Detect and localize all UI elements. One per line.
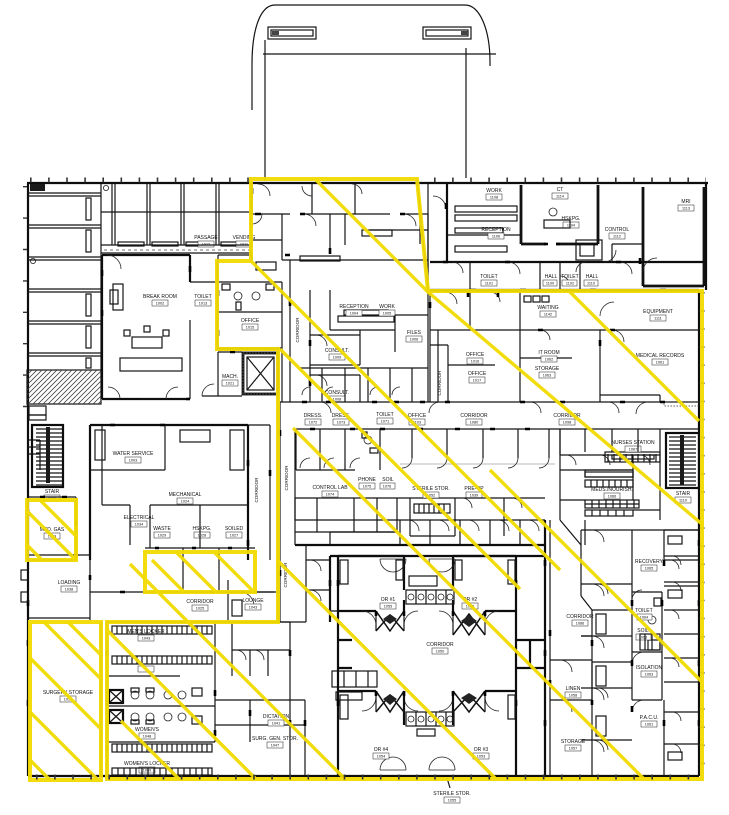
svg-text:1003: 1003	[129, 459, 137, 463]
svg-text:CORRIDOR: CORRIDOR	[295, 317, 300, 343]
svg-text:WASTE: WASTE	[153, 526, 171, 532]
svg-text:1050: 1050	[436, 650, 444, 654]
svg-text:1038: 1038	[65, 588, 73, 592]
svg-text:1013: 1013	[199, 302, 207, 306]
svg-text:1057: 1057	[569, 747, 577, 751]
svg-text:1065: 1065	[645, 567, 653, 571]
svg-text:BREAK ROOM: BREAK ROOM	[143, 294, 177, 300]
svg-text:OFFICE: OFFICE	[468, 371, 487, 377]
svg-text:1004: 1004	[350, 312, 358, 316]
svg-text:1080: 1080	[470, 421, 478, 425]
svg-text:DRESS.: DRESS.	[304, 413, 323, 419]
svg-text:1086: 1086	[576, 622, 584, 626]
svg-text:FILES: FILES	[407, 330, 422, 336]
svg-text:1028: 1028	[198, 534, 206, 538]
svg-text:PHONE: PHONE	[358, 477, 376, 483]
svg-text:1104: 1104	[567, 224, 575, 228]
svg-text:SOILED: SOILED	[225, 526, 244, 532]
svg-text:1054: 1054	[377, 755, 385, 759]
svg-text:1009: 1009	[333, 356, 341, 360]
svg-text:1067: 1067	[629, 448, 637, 452]
svg-text:1063: 1063	[543, 374, 551, 378]
svg-text:1071: 1071	[381, 420, 389, 424]
svg-text:CORRIDOR: CORRIDOR	[284, 465, 289, 491]
svg-text:CORRIDOR: CORRIDOR	[437, 370, 442, 396]
svg-text:1076: 1076	[383, 485, 391, 489]
svg-text:LINEN: LINEN	[566, 686, 581, 692]
svg-text:STERILE STOR.: STERILE STOR.	[433, 791, 470, 797]
svg-text:MEDICAL RECORDS: MEDICAL RECORDS	[636, 353, 685, 359]
svg-text:1075: 1075	[363, 485, 371, 489]
svg-text:1048: 1048	[143, 735, 151, 739]
svg-text:TOILET: TOILET	[480, 274, 497, 280]
svg-text:OR #4: OR #4	[374, 747, 389, 753]
svg-text:WORK: WORK	[486, 188, 502, 194]
svg-text:HALL: HALL	[545, 274, 558, 280]
svg-text:LOADING: LOADING	[58, 580, 81, 586]
svg-text:CONTROL LAB: CONTROL LAB	[312, 485, 348, 491]
svg-text:P.A.C.U.: P.A.C.U.	[640, 715, 659, 721]
svg-text:1063: 1063	[645, 673, 653, 677]
svg-text:NURSES STATION: NURSES STATION	[611, 440, 655, 446]
svg-text:1053: 1053	[477, 755, 485, 759]
svg-text:1016: 1016	[471, 360, 479, 364]
svg-text:WOMEN'S: WOMEN'S	[135, 727, 160, 733]
svg-text:RECOVERY: RECOVERY	[635, 559, 664, 565]
svg-text:1017: 1017	[473, 379, 481, 383]
svg-text:1100: 1100	[546, 282, 554, 286]
svg-text:OR #1: OR #1	[381, 597, 396, 603]
svg-text:1113: 1113	[682, 207, 690, 211]
svg-text:HALL: HALL	[586, 274, 599, 280]
svg-text:CORRIDOR: CORRIDOR	[186, 599, 214, 605]
svg-text:OFFICE: OFFICE	[408, 413, 427, 419]
svg-text:WORK: WORK	[379, 304, 395, 310]
svg-text:1114: 1114	[556, 195, 564, 199]
svg-text:1039: 1039	[470, 494, 478, 498]
svg-text:1072: 1072	[309, 421, 317, 425]
svg-text:IT ROOM: IT ROOM	[538, 350, 559, 356]
svg-text:1049: 1049	[143, 769, 151, 773]
svg-text:TOILET: TOILET	[635, 608, 652, 614]
svg-text:1047: 1047	[271, 744, 279, 748]
svg-text:1106: 1106	[492, 235, 500, 239]
svg-text:1029: 1029	[158, 534, 166, 538]
svg-text:1005: 1005	[383, 312, 391, 316]
svg-text:1061: 1061	[656, 361, 664, 365]
svg-text:1142: 1142	[544, 313, 552, 317]
svg-text:1074: 1074	[326, 493, 334, 497]
svg-text:MECHANICAL: MECHANICAL	[169, 492, 202, 498]
svg-text:1062: 1062	[545, 358, 553, 362]
svg-text:STORAGE: STORAGE	[535, 366, 560, 372]
svg-text:1015: 1015	[246, 326, 254, 330]
svg-text:CORRIDOR: CORRIDOR	[426, 642, 454, 648]
svg-text:1021: 1021	[226, 382, 234, 386]
svg-text:1061: 1061	[645, 723, 653, 727]
svg-text:1043: 1043	[142, 637, 150, 641]
svg-text:SURG. GEN. STOR.: SURG. GEN. STOR.	[252, 736, 298, 742]
svg-text:SOIL: SOIL	[382, 477, 394, 483]
svg-text:1041: 1041	[272, 722, 280, 726]
svg-text:1055: 1055	[448, 799, 456, 803]
svg-text:1002: 1002	[156, 302, 164, 306]
svg-text:OFFICE: OFFICE	[466, 352, 485, 358]
svg-text:MEDS./NOURISH.: MEDS./NOURISH.	[591, 487, 633, 493]
svg-text:LOUNGE: LOUNGE	[242, 598, 264, 604]
svg-text:1066: 1066	[608, 495, 616, 499]
svg-text:1110: 1110	[679, 499, 687, 503]
svg-text:1055: 1055	[384, 605, 392, 609]
svg-text:1027: 1027	[230, 534, 238, 538]
svg-text:ISOLATION: ISOLATION	[636, 665, 663, 671]
svg-text:WAITING: WAITING	[537, 305, 558, 311]
svg-text:1025: 1025	[196, 607, 204, 611]
svg-text:TOILET: TOILET	[376, 412, 393, 418]
svg-text:1111: 1111	[654, 317, 662, 321]
svg-text:1098: 1098	[563, 421, 571, 425]
svg-text:RECEPTION: RECEPTION	[339, 304, 369, 310]
svg-text:1034: 1034	[135, 523, 143, 527]
svg-text:HSKPG.: HSKPG.	[193, 526, 212, 532]
svg-text:1006: 1006	[410, 338, 418, 342]
svg-text:OFFICE: OFFICE	[241, 318, 260, 324]
svg-text:1073: 1073	[337, 421, 345, 425]
svg-text:1110: 1110	[587, 282, 595, 286]
svg-text:1043: 1043	[249, 606, 257, 610]
svg-text:RECEPTION: RECEPTION	[481, 227, 511, 233]
svg-text:CORRIDOR: CORRIDOR	[566, 614, 594, 620]
svg-text:OR #3: OR #3	[474, 747, 489, 753]
svg-text:STAIR: STAIR	[45, 489, 60, 495]
svg-text:WATER SERVICE: WATER SERVICE	[113, 451, 154, 457]
svg-text:1108: 1108	[490, 196, 498, 200]
svg-text:CT: CT	[557, 187, 564, 193]
svg-text:1102: 1102	[566, 282, 574, 286]
svg-text:PASSAGE: PASSAGE	[194, 235, 218, 241]
svg-text:EQUIPMENT: EQUIPMENT	[643, 309, 673, 315]
svg-text:1024: 1024	[181, 500, 189, 504]
svg-text:MRI: MRI	[681, 199, 690, 205]
svg-text:TOILET: TOILET	[194, 294, 211, 300]
svg-text:CORRIDOR: CORRIDOR	[254, 477, 259, 503]
svg-text:1101: 1101	[485, 282, 493, 286]
svg-text:TOILET: TOILET	[561, 274, 578, 280]
svg-text:1058: 1058	[569, 694, 577, 698]
svg-text:1112: 1112	[613, 235, 621, 239]
svg-text:CORRIDOR: CORRIDOR	[460, 413, 488, 419]
svg-text:HSKPG.: HSKPG.	[562, 216, 581, 222]
svg-text:STAIR: STAIR	[676, 491, 691, 497]
svg-text:CONTROL: CONTROL	[605, 227, 630, 233]
svg-text:MACH.: MACH.	[222, 374, 238, 380]
svg-text:MEN'S LOCKER: MEN'S LOCKER	[127, 629, 165, 635]
